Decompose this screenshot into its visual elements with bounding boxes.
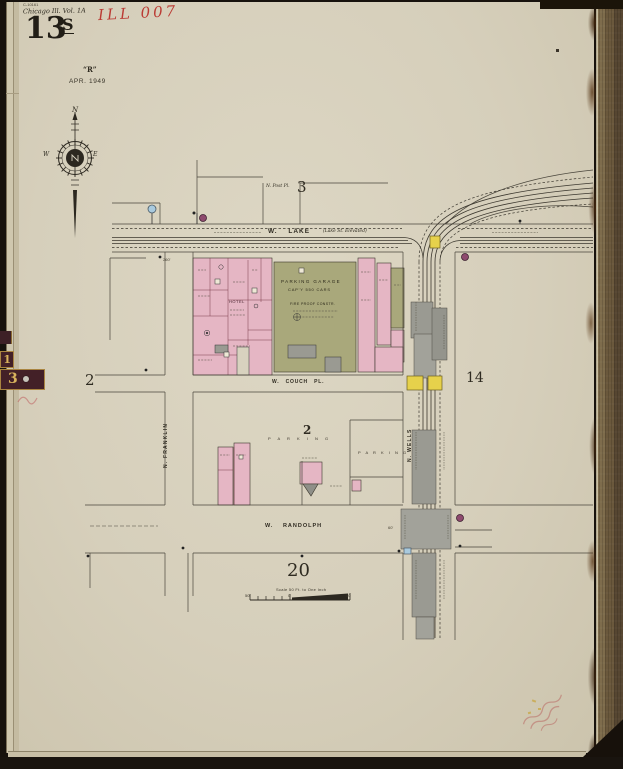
scale-tick-label: 0 — [288, 594, 290, 598]
yellow-specks — [528, 699, 541, 714]
scanned-sanborn-map-page: C-10161 Chicago Ill. Vol. 1A 13 S ILL 00… — [0, 0, 623, 769]
scale-tick-label: 50 — [245, 594, 249, 598]
street-label-post-pl: N. Post Pl. — [266, 185, 290, 190]
water-tank-symbol — [148, 205, 156, 213]
building-label-garage-capacity: CAP'Y 550 CARS — [288, 288, 331, 292]
paper-speck — [556, 49, 559, 52]
adjoining-sheet-left: 2 — [85, 373, 95, 388]
compass-north-label: N — [72, 107, 78, 114]
building-label-hotel: HOTEL — [229, 300, 245, 304]
red-accession-stamp: ILL 007 — [98, 4, 179, 23]
scale-caption: Scale 50 Ft. to One Inch — [276, 588, 326, 592]
compass-rose — [56, 112, 94, 238]
building-label-garage-construction: FIRE PROOF CONSTR. — [290, 303, 335, 307]
red-pencil-scribble — [18, 397, 37, 404]
street-label-randolph: W. RANDOLPH — [265, 524, 322, 530]
fire-alarm-symbol — [462, 254, 469, 261]
parking-lot-label-west: P A R K I N G — [268, 437, 331, 441]
block-number: 2 — [303, 424, 311, 436]
street-label-wells: N. WELLS — [408, 429, 413, 463]
street-label-couch: W. COUCH PL. — [272, 380, 324, 385]
binding-cloth-texture — [596, 0, 623, 769]
date-stamp: APR. 1949 — [69, 79, 106, 86]
scale-tick-label: 50 — [346, 594, 350, 598]
el-station-platforms — [401, 302, 451, 639]
dimension-label: 60' — [388, 526, 393, 530]
water-symbol — [404, 548, 411, 554]
corner-library-stamp — [522, 693, 572, 739]
dimension-label: 260' — [163, 258, 170, 262]
fire-alarm-symbol — [200, 215, 207, 222]
sheet-suffix: S — [62, 17, 74, 34]
spine-tab-rivet — [23, 376, 29, 382]
fire-alarm-symbol — [457, 515, 464, 522]
adjoining-sheet-right: 14 — [466, 371, 484, 385]
sheet-number: 13 — [25, 14, 67, 44]
adjoining-sheet-bottom: 20 — [287, 562, 310, 580]
scale-bar — [250, 593, 350, 600]
spine-tab-partial — [0, 331, 12, 344]
compass-east-label: E — [93, 152, 97, 158]
adjoining-sheet-top: 3 — [297, 180, 307, 195]
elevated-railroad-tracks — [112, 177, 593, 638]
revision-mark: “R” — [83, 66, 97, 73]
building-label-parking-garage: PARKING GARAGE — [281, 280, 341, 285]
compass-west-label: W — [43, 152, 49, 158]
street-label-lake: W. LAKE — [268, 229, 310, 236]
book-edge-shadow-top — [540, 0, 623, 9]
spine-tab-1: 1 — [0, 351, 14, 368]
street-label-franklin: N. FRANKLIN — [164, 423, 169, 468]
street-label-lake-elevated-note: (Lake St. Elevated) — [323, 230, 367, 235]
utility-pole-dot — [193, 212, 196, 215]
parking-lot-label-east: P A R K I N G — [358, 451, 408, 455]
book-edge-shadow-bottom — [0, 757, 623, 769]
